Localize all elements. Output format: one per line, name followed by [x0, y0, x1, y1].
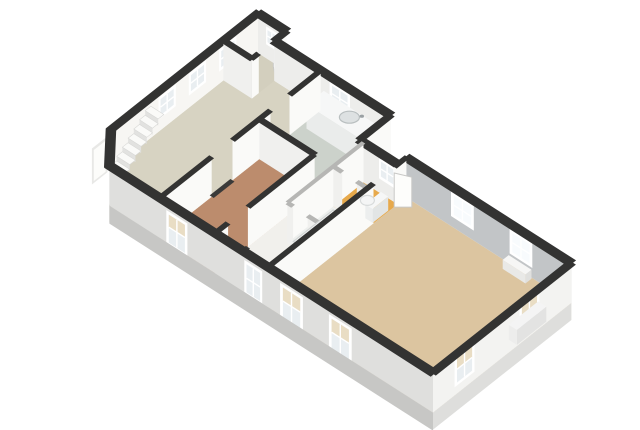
faucet [360, 115, 364, 118]
chamfer-wall-top [104, 128, 116, 168]
toilet-bowl [360, 195, 374, 205]
floor-plan-canvas [0, 0, 640, 430]
living-door-leaf [394, 173, 412, 207]
partition-wall-face [287, 203, 293, 247]
sink [339, 111, 359, 123]
floor-plan-viewport [0, 0, 640, 430]
wc-south-wall-face [333, 166, 342, 212]
